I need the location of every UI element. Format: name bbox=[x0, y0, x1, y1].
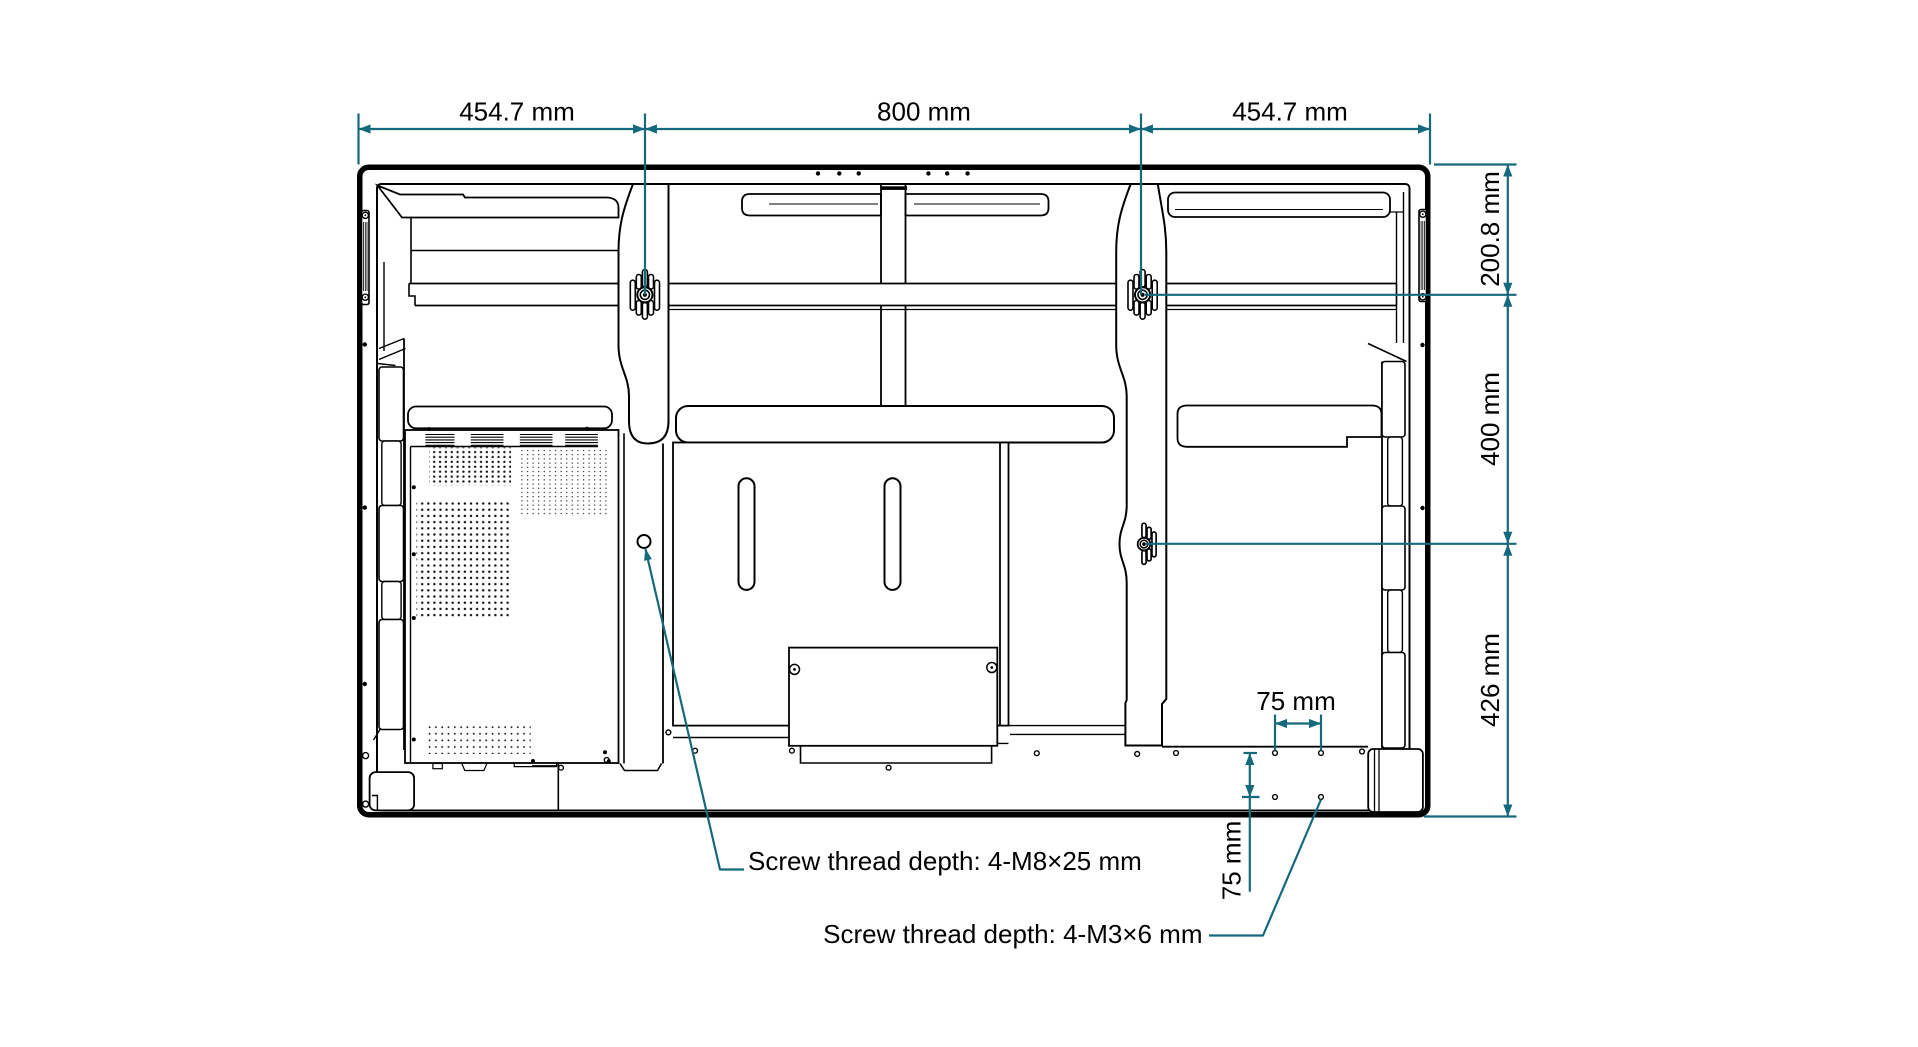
svg-text:426 mm: 426 mm bbox=[1475, 633, 1505, 727]
svg-text:800 mm: 800 mm bbox=[877, 97, 971, 127]
svg-text:454.7 mm: 454.7 mm bbox=[459, 97, 575, 127]
svg-text:Screw thread depth: 4-M3×6 mm: Screw thread depth: 4-M3×6 mm bbox=[823, 919, 1202, 949]
svg-text:400 mm: 400 mm bbox=[1475, 372, 1505, 466]
svg-text:75 mm: 75 mm bbox=[1256, 686, 1335, 716]
svg-text:75 mm: 75 mm bbox=[1217, 821, 1247, 900]
svg-text:454.7 mm: 454.7 mm bbox=[1232, 97, 1348, 127]
svg-text:Screw thread depth: 4-M8×25 mm: Screw thread depth: 4-M8×25 mm bbox=[748, 846, 1142, 876]
svg-text:200.8 mm: 200.8 mm bbox=[1475, 171, 1505, 287]
